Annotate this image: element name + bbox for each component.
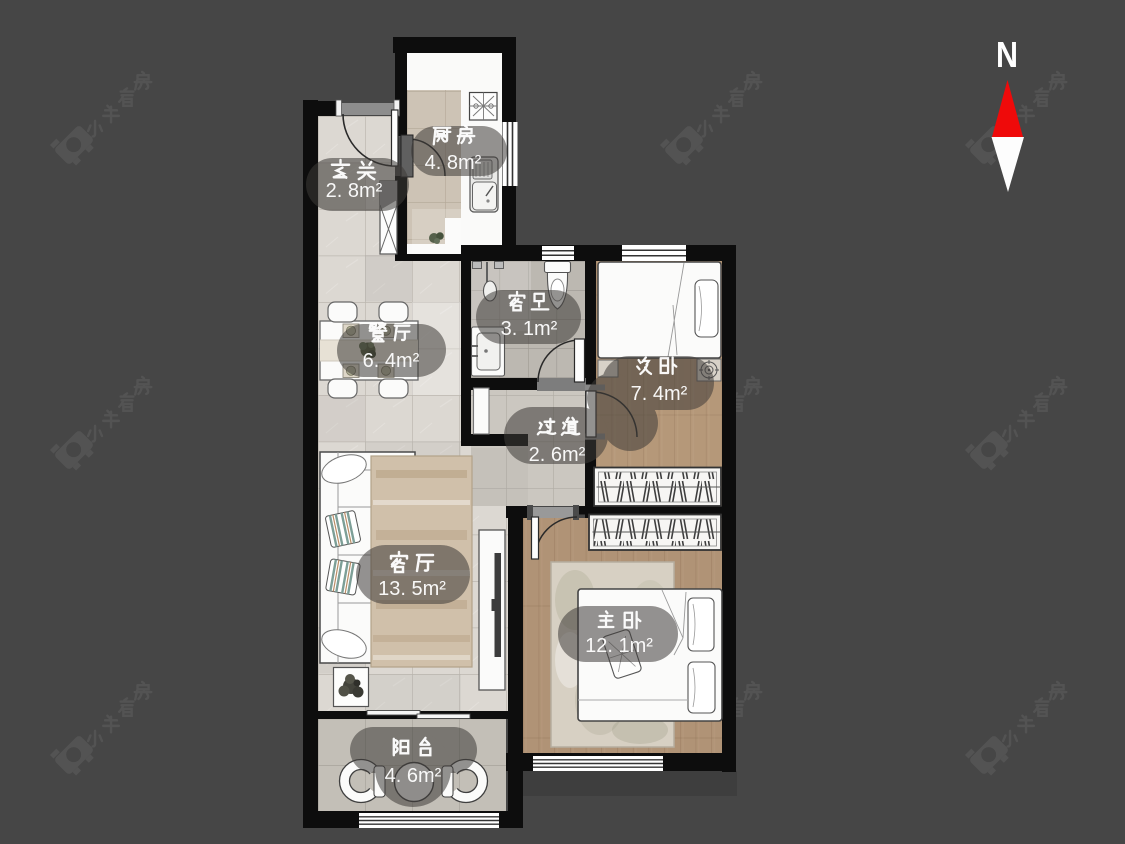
svg-text:2. 8m²: 2. 8m²	[326, 180, 383, 202]
svg-text:3. 1m²: 3. 1m²	[501, 318, 558, 340]
svg-text:N: N	[996, 34, 1018, 75]
svg-text:7. 4m²: 7. 4m²	[631, 383, 688, 405]
svg-text:4. 6m²: 4. 6m²	[385, 765, 442, 787]
svg-text:2. 6m²: 2. 6m²	[529, 444, 586, 466]
svg-text:4. 8m²: 4. 8m²	[425, 152, 482, 174]
svg-text:6. 4m²: 6. 4m²	[363, 350, 420, 372]
svg-text:13. 5m²: 13. 5m²	[378, 578, 446, 600]
svg-text:12. 1m²: 12. 1m²	[585, 635, 653, 657]
